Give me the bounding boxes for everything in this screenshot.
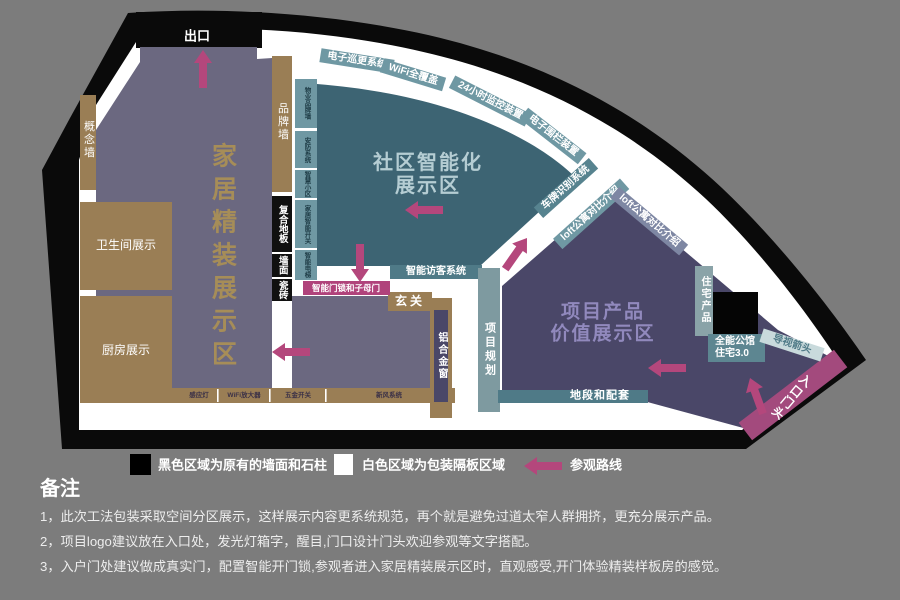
strip-separator	[269, 389, 271, 402]
teal-left-strip-smart-elevator: 智能电梯	[295, 250, 317, 280]
visitor-system-shape	[390, 265, 482, 279]
strip-separator	[325, 389, 327, 402]
strip-separator	[217, 389, 219, 402]
teal-left-strip-security: 安防系统	[295, 131, 317, 168]
door-lock-shape	[303, 281, 390, 295]
mansion-box-shape	[708, 334, 765, 362]
location-support-shape	[498, 390, 648, 403]
concept-wall-shape	[80, 95, 96, 190]
legend-black-square	[130, 454, 151, 475]
floor-strip-shape-3	[272, 279, 292, 301]
project-planning-shape	[478, 268, 500, 412]
teal-left-strip-smart-community: 智慧小区	[295, 170, 317, 198]
note-line-3: 3，入户门处建议做成真实门，配置智能开门锁,参观者进入家居精装展示区时，直观感受…	[40, 556, 727, 575]
aluminum-window-inner	[434, 310, 448, 402]
floor-strip-shape-1	[272, 196, 292, 252]
exit-corridor-wall	[136, 12, 262, 48]
hallway-shape	[388, 292, 432, 311]
note-line-2: 2，项目logo建议放在入口处，发光灯箱字，醒目,门口设计门头欢迎参观等文字搭配…	[40, 531, 538, 550]
bathroom-shape	[80, 202, 172, 290]
teal-left-strip-property-wall: 物业品牌墙	[295, 79, 317, 128]
teal-left-strip-smart-switch: 家居智能开关	[295, 200, 317, 248]
note-line-1: 1，此次工法包装采取空间分区展示，这样展示内容更系统规范，再个就是避免过道太窄人…	[40, 506, 720, 525]
legend-route-arrow	[524, 457, 562, 475]
floor-plan-page: 出口 概念墙 品牌墙 卫生间展示 厨房展示 家居精装展示区 复合地板 墙面 瓷砖…	[0, 0, 900, 600]
legend-white-square	[334, 454, 353, 475]
residential-product-shape	[695, 266, 713, 336]
stone-column-shape	[713, 292, 758, 334]
floor-strip-shape-2	[272, 254, 292, 277]
brand-wall-shape	[272, 56, 292, 192]
